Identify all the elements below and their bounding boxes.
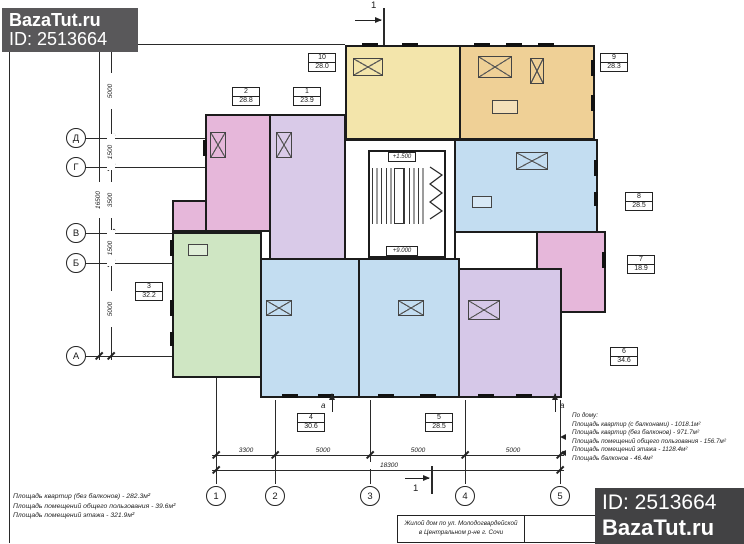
apartment-label-7: 718.9 <box>627 255 655 274</box>
apartment-number: 3 <box>136 283 162 292</box>
axis-line-3 <box>370 400 371 484</box>
dimension-value: 5000 <box>107 291 115 327</box>
note-line: Площадь квартир (без балконов) - 971.7м² <box>572 429 726 438</box>
apartment-2-bay <box>172 200 207 232</box>
table-symbol <box>188 244 208 256</box>
floor-plan-sheet: +1.500 +9.000 228.8 123.9 1028.0 928.3 8… <box>0 0 744 544</box>
apartment-number: 8 <box>626 193 652 202</box>
dimension-value: 5000 <box>492 447 534 454</box>
window-mark <box>420 394 436 398</box>
bed-symbol <box>478 56 512 78</box>
dimension-value: 5000 <box>107 73 115 109</box>
section-arrow-top <box>355 20 381 21</box>
section-arrow-a-left <box>332 394 333 412</box>
apartment-area: 18.9 <box>628 265 654 273</box>
axis-circle-d: Д <box>66 128 86 148</box>
bed-symbol <box>353 58 383 76</box>
apartment-number: 6 <box>611 348 637 357</box>
apartment-area: 28.5 <box>626 202 652 210</box>
apartment-number: 7 <box>628 256 654 265</box>
apartment-5-block <box>358 258 460 398</box>
titleblock-object-line2: в Центральном р-не г. Сочи <box>398 528 524 537</box>
section-arrow-bottom <box>405 478 429 479</box>
axis-line-2 <box>275 400 276 484</box>
dimension-total-value: 18300 <box>368 462 410 469</box>
note-line: Площадь квартир (с балконами) - 1018.1м² <box>572 421 726 430</box>
axis-circle-4: 4 <box>455 486 475 506</box>
window-mark <box>170 240 174 256</box>
elevation-mark-floor: +9.000 <box>386 246 418 256</box>
note-line: Площадь помещений этажа - 321.9м² <box>13 511 175 521</box>
axis-circle-a: А <box>66 346 86 366</box>
watermark-top-left: BazaTut.ru ID: 2513664 <box>2 8 138 52</box>
apartment-label-2: 228.8 <box>232 87 260 106</box>
window-mark <box>478 394 494 398</box>
watermark-site-name: BazaTut.ru <box>602 515 737 541</box>
bed-symbol <box>398 300 424 316</box>
watermark-id: ID: 2513664 <box>602 491 737 515</box>
section-number-top: 1 <box>371 0 376 11</box>
note-line: Площадь балконов - 46.4м² <box>572 455 726 464</box>
axis-circle-1: 1 <box>206 486 226 506</box>
stair-door-zigzag <box>429 166 444 220</box>
apartment-label-10: 1028.0 <box>308 53 336 72</box>
axis-line-5 <box>560 400 561 484</box>
window-mark <box>594 192 598 206</box>
table-symbol <box>472 196 492 208</box>
apartment-number: 5 <box>426 414 452 423</box>
elevation-mark-stair: +1.500 <box>388 152 416 162</box>
note-line: Площадь квартир (без балконов) - 282.3м² <box>13 492 175 502</box>
section-number-bottom: 1 <box>413 483 418 494</box>
dimension-total-value: 16500 <box>95 182 103 218</box>
section-line-top <box>383 8 385 46</box>
axis-circle-v: В <box>66 223 86 243</box>
window-mark <box>282 394 298 398</box>
axis-circle-3: 3 <box>360 486 380 506</box>
note-title: По дому: <box>572 412 726 421</box>
window-mark <box>538 43 554 47</box>
axis-circle-5: 5 <box>550 486 570 506</box>
section-arrow-a-right <box>555 394 556 412</box>
stair-stringer <box>394 168 404 224</box>
apartment-6-block <box>458 268 562 398</box>
apartment-number: 2 <box>233 88 259 97</box>
dimension-value: 1500 <box>107 134 115 170</box>
apartment-label-3: 332.2 <box>135 282 163 301</box>
apartment-label-5: 528.5 <box>425 413 453 432</box>
section-letter-a-left: а <box>321 401 325 410</box>
watermark-bottom-right: ID: 2513664 BazaTut.ru <box>595 488 744 544</box>
dimension-value: 1500 <box>107 230 115 266</box>
note-line: Площадь помещений этажа - 1128.4м² <box>572 446 726 455</box>
window-mark <box>203 140 207 156</box>
apartment-label-1: 123.9 <box>293 87 321 106</box>
axis-circle-2: 2 <box>265 486 285 506</box>
apartment-number: 10 <box>309 54 335 63</box>
apartment-label-6: 634.6 <box>610 347 638 366</box>
window-mark <box>591 95 595 111</box>
apartment-area: 30.6 <box>298 423 324 431</box>
window-mark <box>402 43 418 47</box>
apartment-label-8: 828.5 <box>625 192 653 211</box>
axis-line-d <box>86 138 210 139</box>
window-mark <box>602 252 606 268</box>
sheet-border-left <box>9 25 10 543</box>
window-mark <box>362 43 378 47</box>
apartment-4-block <box>260 258 360 398</box>
window-mark <box>594 160 598 176</box>
dimension-line-bottom <box>212 455 564 456</box>
apartment-area: 32.2 <box>136 292 162 300</box>
building-area-notes: По дому: Площадь квартир (с балконами) -… <box>572 412 726 464</box>
table-symbol <box>492 100 518 114</box>
apartment-area: 28.0 <box>309 63 335 71</box>
axis-line-4 <box>465 400 466 484</box>
section-line-bottom <box>431 466 433 494</box>
apartment-label-4: 430.6 <box>297 413 325 432</box>
window-mark <box>170 332 174 346</box>
corridor-block-2 <box>454 231 538 270</box>
apartment-area: 28.3 <box>601 63 627 71</box>
dimension-value: 5000 <box>302 447 344 454</box>
axis-line-g <box>86 167 210 168</box>
dimension-value: 3500 <box>107 182 115 218</box>
window-mark <box>474 43 490 47</box>
leader-arrow <box>560 450 566 456</box>
bed-symbol <box>468 300 500 320</box>
titleblock-object-cell: Жилой дом по ул. Молодогвардейской в Цен… <box>397 515 525 543</box>
window-mark <box>170 300 174 316</box>
window-mark <box>591 60 595 76</box>
bed-symbol <box>266 300 292 316</box>
window-mark <box>516 394 532 398</box>
apartment-area: 34.6 <box>611 357 637 365</box>
dimension-value: 3300 <box>225 447 267 454</box>
note-line: Площадь помещений общего пользования - 3… <box>13 502 175 512</box>
window-mark <box>378 394 394 398</box>
watermark-id: ID: 2513664 <box>9 30 131 49</box>
apartment-number: 4 <box>298 414 324 423</box>
wardrobe-symbol <box>530 58 544 84</box>
bed-symbol <box>516 152 548 170</box>
axis-circle-g: Г <box>66 157 86 177</box>
apartment-area: 23.9 <box>294 97 320 105</box>
window-mark <box>506 43 522 47</box>
section-letter-a-right: а <box>560 401 564 410</box>
apartment-label-9: 928.3 <box>600 53 628 72</box>
apartment-3-block <box>172 232 262 378</box>
bed-symbol <box>210 132 226 158</box>
dimension-value: 5000 <box>397 447 439 454</box>
leader-arrow <box>560 434 566 440</box>
titleblock-object-line1: Жилой дом по ул. Молодогвардейской <box>398 519 524 528</box>
apartment-area: 28.8 <box>233 97 259 105</box>
bed-symbol <box>276 132 292 158</box>
axis-circle-b: Б <box>66 253 86 273</box>
dimension-line-bottom-total <box>212 470 564 471</box>
apartment-number: 1 <box>294 88 320 97</box>
floor-area-notes: Площадь квартир (без балконов) - 282.3м²… <box>13 492 175 521</box>
watermark-site-name: BazaTut.ru <box>9 11 131 30</box>
apartment-area: 28.5 <box>426 423 452 431</box>
apartment-number: 9 <box>601 54 627 63</box>
